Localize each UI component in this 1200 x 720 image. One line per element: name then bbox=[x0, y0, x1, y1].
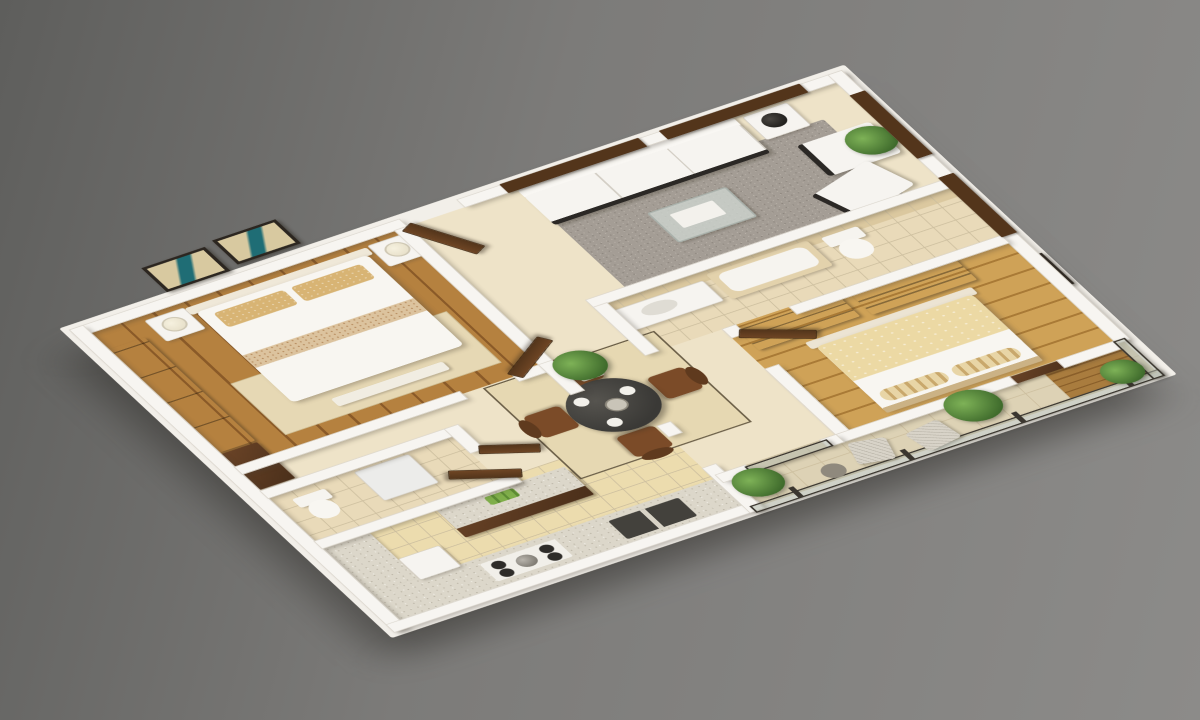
master-bedroom-door bbox=[739, 329, 817, 339]
small-bath-door bbox=[478, 443, 541, 454]
